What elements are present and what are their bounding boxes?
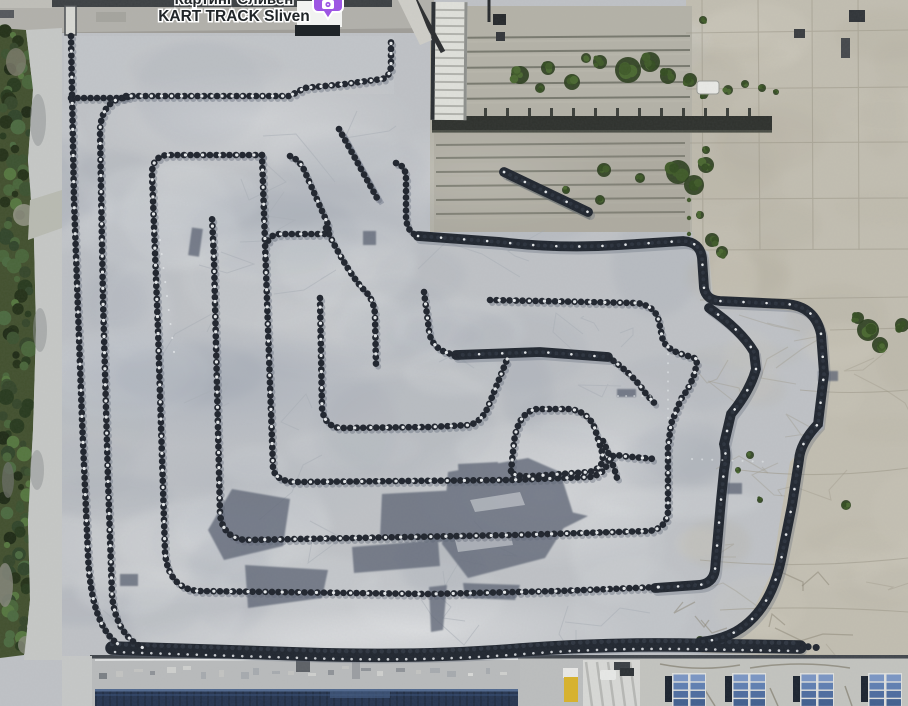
svg-text:KART TRACK Sliven: KART TRACK Sliven <box>158 8 310 25</box>
svg-text:Картинг Сливен: Картинг Сливен <box>175 0 294 8</box>
